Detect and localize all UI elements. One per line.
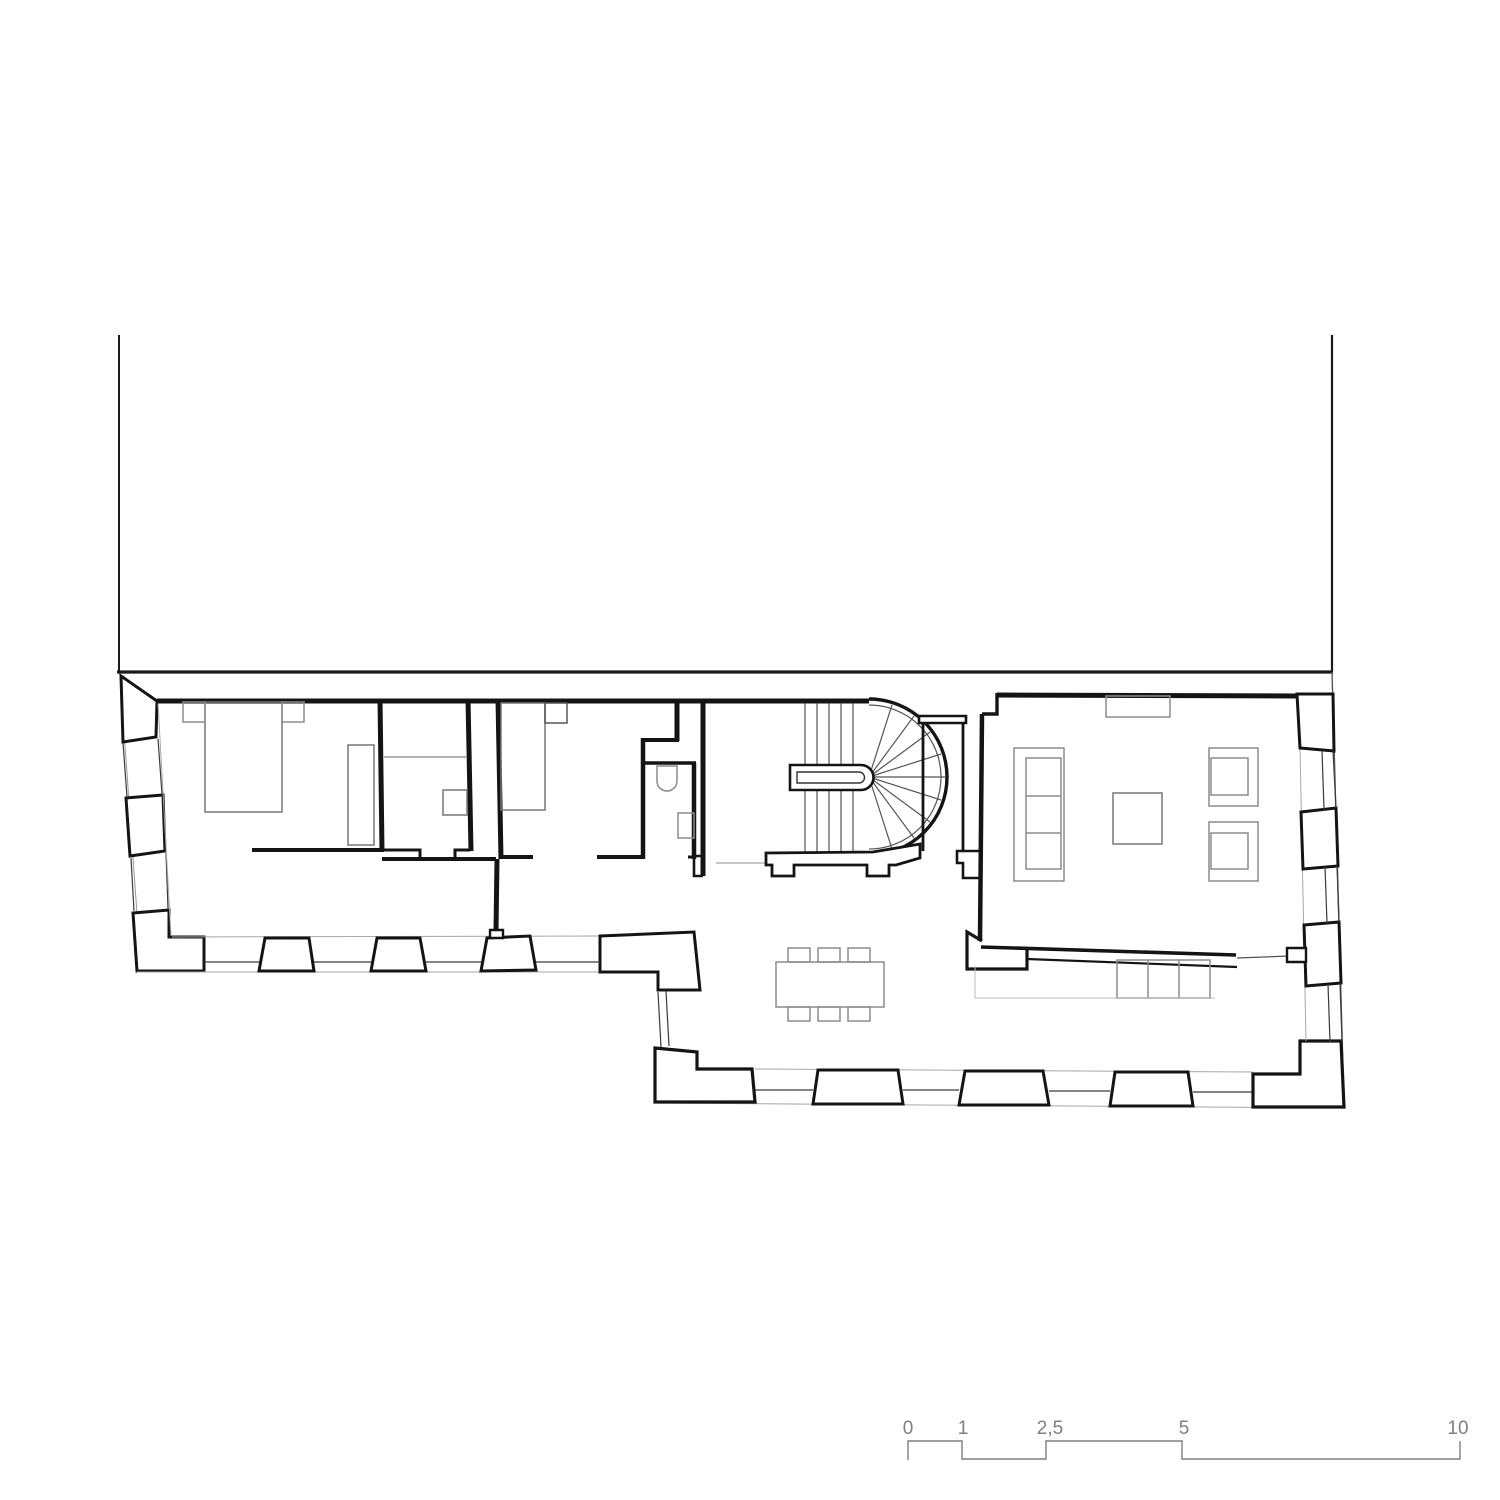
wall-living-bottom-left	[967, 932, 1027, 969]
wall-small-room-right	[468, 699, 471, 851]
kitchen	[975, 947, 1290, 998]
sofa-seat	[1026, 758, 1061, 869]
bath-sink	[678, 813, 694, 838]
dining-chair	[818, 1007, 840, 1021]
stair-threshold	[766, 844, 920, 876]
window-lines	[1322, 751, 1342, 1042]
sofa-outline	[1014, 748, 1064, 881]
wall-living-left	[980, 714, 982, 941]
wall-corner-block	[1253, 1041, 1344, 1107]
left-wing-bottom-wall	[137, 930, 700, 990]
nightstand	[183, 702, 205, 722]
wall-corner-block	[600, 932, 700, 990]
armchair-seat	[1211, 758, 1248, 795]
living-room-walls	[967, 693, 1299, 969]
right-exterior-wall	[1287, 694, 1342, 1042]
coffee-table	[1113, 793, 1162, 844]
scale-label-10: 10	[1447, 1418, 1468, 1439]
scale-label-0: 0	[903, 1418, 914, 1439]
plan-sheet: 0 1 2,5 5 10	[0, 0, 1500, 1500]
wall-pier	[1304, 922, 1341, 986]
wall-pier	[126, 795, 165, 856]
wall-pier	[1301, 808, 1338, 869]
spiral-stair	[766, 699, 947, 876]
sideboard	[1106, 696, 1170, 717]
scale-label-2-5: 2,5	[1037, 1418, 1063, 1439]
wall-mid-divider	[496, 859, 497, 931]
wall-pier	[1297, 694, 1334, 751]
dining-chair	[848, 1007, 870, 1021]
armchair-seat	[1211, 833, 1248, 869]
wall-pier	[813, 1070, 903, 1104]
floor-plan-drawing: 0 1 2,5 5 10	[0, 0, 1500, 1500]
toilet	[657, 766, 677, 791]
wall-bedroom-right	[380, 699, 382, 851]
interior-walls	[157, 699, 869, 931]
shaft	[919, 716, 981, 878]
bed	[205, 702, 282, 812]
dining-chair	[848, 948, 870, 962]
dining-chair	[788, 948, 810, 962]
kitchen-wall-nib	[1237, 956, 1290, 958]
stair-newel-inner	[797, 772, 865, 783]
stair-treads-winder	[869, 705, 945, 849]
nightstand	[282, 702, 304, 722]
dining-chair	[818, 948, 840, 962]
wall-pier	[371, 938, 426, 971]
wall-living-top-step	[982, 693, 997, 714]
shaft-cap	[919, 716, 966, 723]
wall-pier	[1110, 1072, 1193, 1106]
dining-chair	[788, 1007, 810, 1021]
wall-pier-corner	[133, 910, 204, 971]
scale-bar-profile	[908, 1441, 1460, 1460]
wall-inner-face	[1300, 748, 1306, 1041]
scale-label-1: 1	[958, 1418, 969, 1439]
closet	[501, 703, 545, 810]
shaft-foot-block	[957, 851, 981, 878]
wall-pier	[959, 1071, 1049, 1105]
wardrobe	[348, 745, 374, 845]
wall-pier	[121, 676, 157, 742]
closet-corner-box	[545, 703, 567, 723]
scale-bar: 0 1 2,5 5 10	[903, 1418, 1469, 1460]
site-boundary	[117, 335, 1344, 1106]
armchair-outline	[1209, 822, 1258, 881]
wall-pier	[259, 938, 314, 971]
kitchen-back-wall	[981, 947, 1236, 955]
dining-table	[776, 962, 884, 1007]
wall-pier	[481, 936, 536, 971]
left-exterior-wall	[121, 676, 204, 971]
wall-pier-nib	[1287, 948, 1306, 962]
small-cabinet	[443, 790, 467, 815]
scale-label-5: 5	[1179, 1418, 1190, 1439]
dining-walls	[655, 991, 1344, 1108]
wall-pier-nib	[490, 930, 503, 938]
armchair-outline	[1209, 748, 1258, 806]
wall-corner-block	[655, 1048, 755, 1102]
